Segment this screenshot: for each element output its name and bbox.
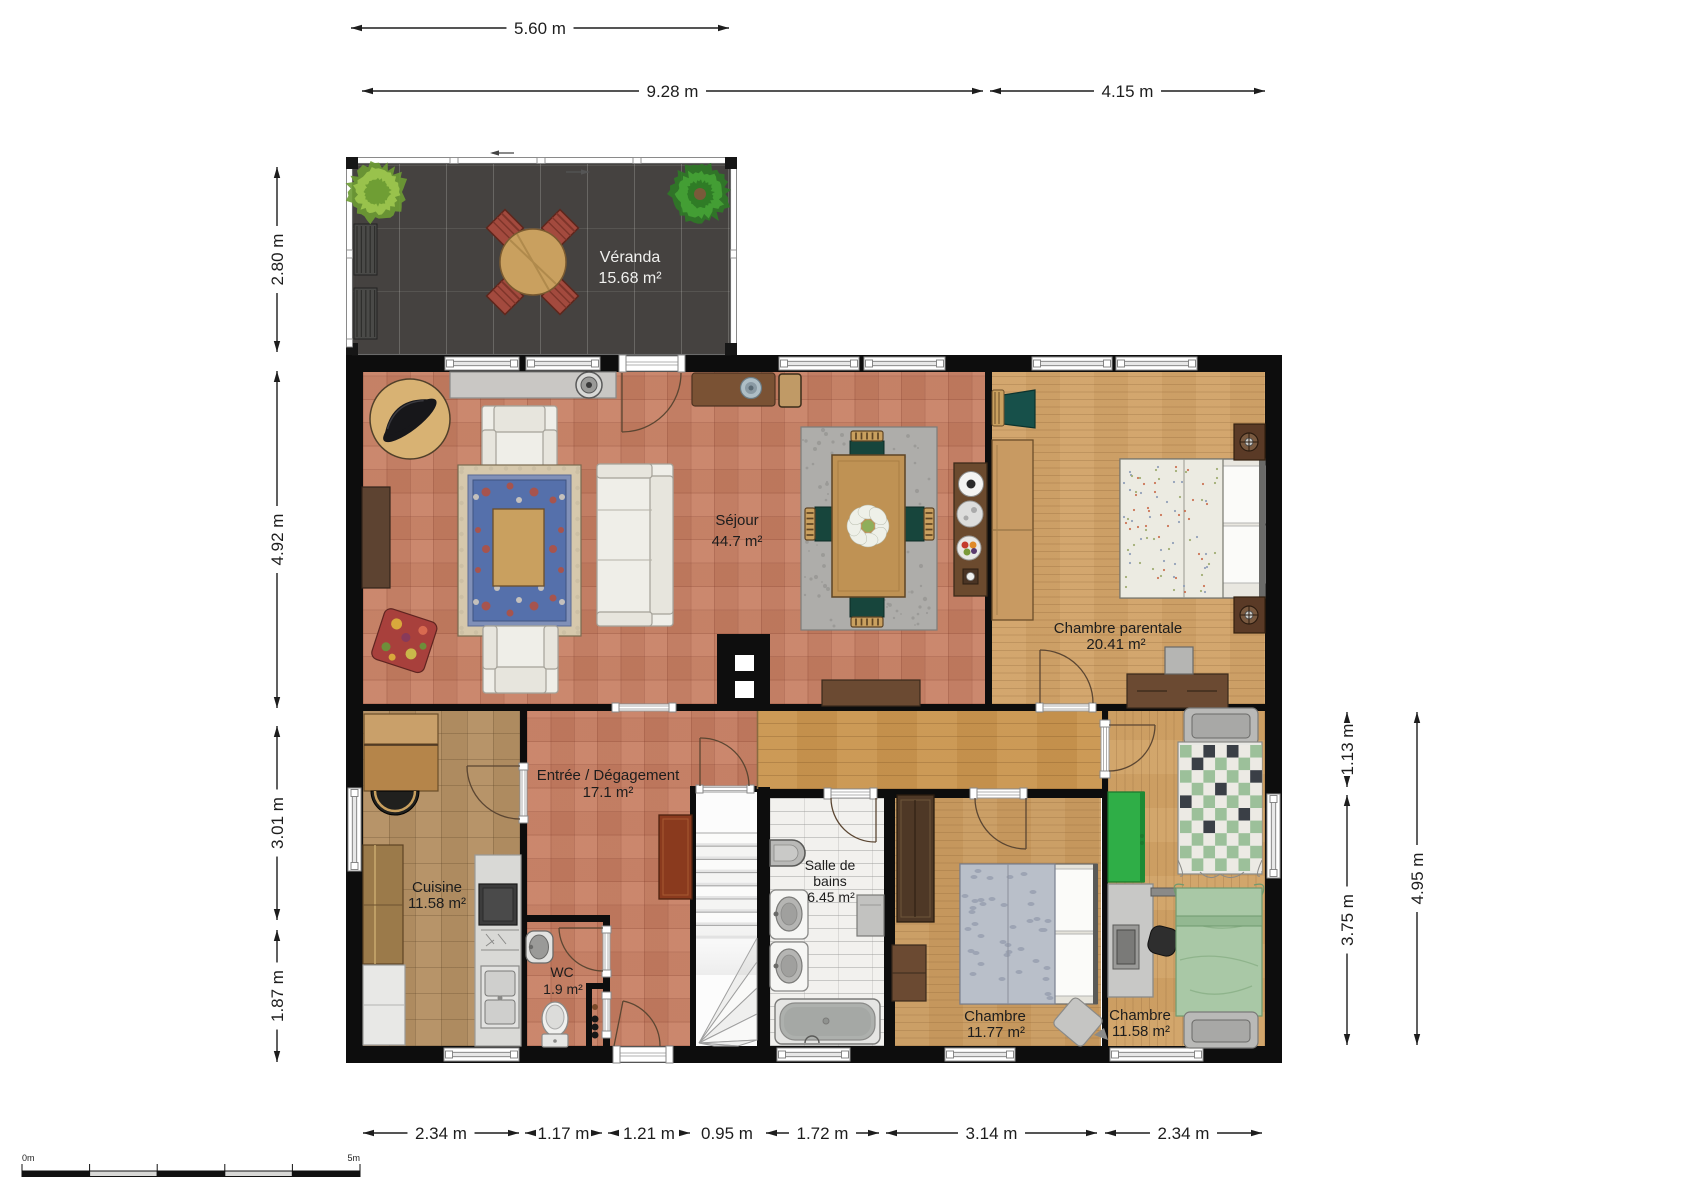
svg-text:20.41 m²: 20.41 m² [1086, 636, 1145, 653]
svg-text:Chambre parentale: Chambre parentale [1054, 620, 1182, 637]
svg-text:Cuisine: Cuisine [412, 879, 462, 896]
svg-text:2.34 m: 2.34 m [415, 1124, 467, 1143]
svg-text:0m: 0m [22, 1153, 35, 1163]
svg-text:3.14 m: 3.14 m [966, 1124, 1018, 1143]
svg-text:17.1 m²: 17.1 m² [583, 784, 634, 801]
svg-text:Salle de: Salle de [805, 857, 856, 873]
svg-text:Séjour: Séjour [715, 512, 758, 529]
svg-text:1.9 m²: 1.9 m² [543, 981, 583, 997]
svg-text:11.58 m²: 11.58 m² [408, 895, 466, 912]
svg-text:0.95 m: 0.95 m [701, 1124, 753, 1143]
svg-text:1.87 m: 1.87 m [268, 970, 287, 1022]
svg-text:Véranda: Véranda [600, 249, 661, 266]
svg-text:6.45 m²: 6.45 m² [807, 889, 855, 905]
svg-text:2.34 m: 2.34 m [1158, 1124, 1210, 1143]
svg-text:Entrée / Dégagement: Entrée / Dégagement [537, 767, 680, 784]
svg-text:4.92 m: 4.92 m [268, 514, 287, 566]
svg-text:3.01 m: 3.01 m [268, 797, 287, 849]
svg-text:2.80 m: 2.80 m [268, 234, 287, 286]
svg-text:5.60 m: 5.60 m [514, 19, 566, 38]
svg-text:bains: bains [813, 873, 846, 889]
svg-text:1.21 m: 1.21 m [623, 1124, 675, 1143]
svg-text:1.17 m: 1.17 m [538, 1124, 590, 1143]
svg-text:Chambre: Chambre [1109, 1007, 1171, 1024]
svg-text:4.95 m: 4.95 m [1408, 853, 1427, 905]
svg-text:11.58 m²: 11.58 m² [1112, 1023, 1170, 1040]
svg-text:1.72 m: 1.72 m [797, 1124, 849, 1143]
svg-text:5m: 5m [347, 1153, 360, 1163]
svg-text:Chambre: Chambre [964, 1008, 1026, 1025]
svg-text:15.68 m²: 15.68 m² [598, 270, 662, 287]
svg-text:WC: WC [550, 964, 573, 980]
svg-text:9.28 m: 9.28 m [647, 82, 699, 101]
svg-text:1.13 m: 1.13 m [1338, 724, 1357, 776]
svg-text:44.7 m²: 44.7 m² [712, 533, 763, 550]
svg-text:4.15 m: 4.15 m [1102, 82, 1154, 101]
svg-text:11.77 m²: 11.77 m² [967, 1024, 1025, 1041]
svg-text:3.75 m: 3.75 m [1338, 894, 1357, 946]
